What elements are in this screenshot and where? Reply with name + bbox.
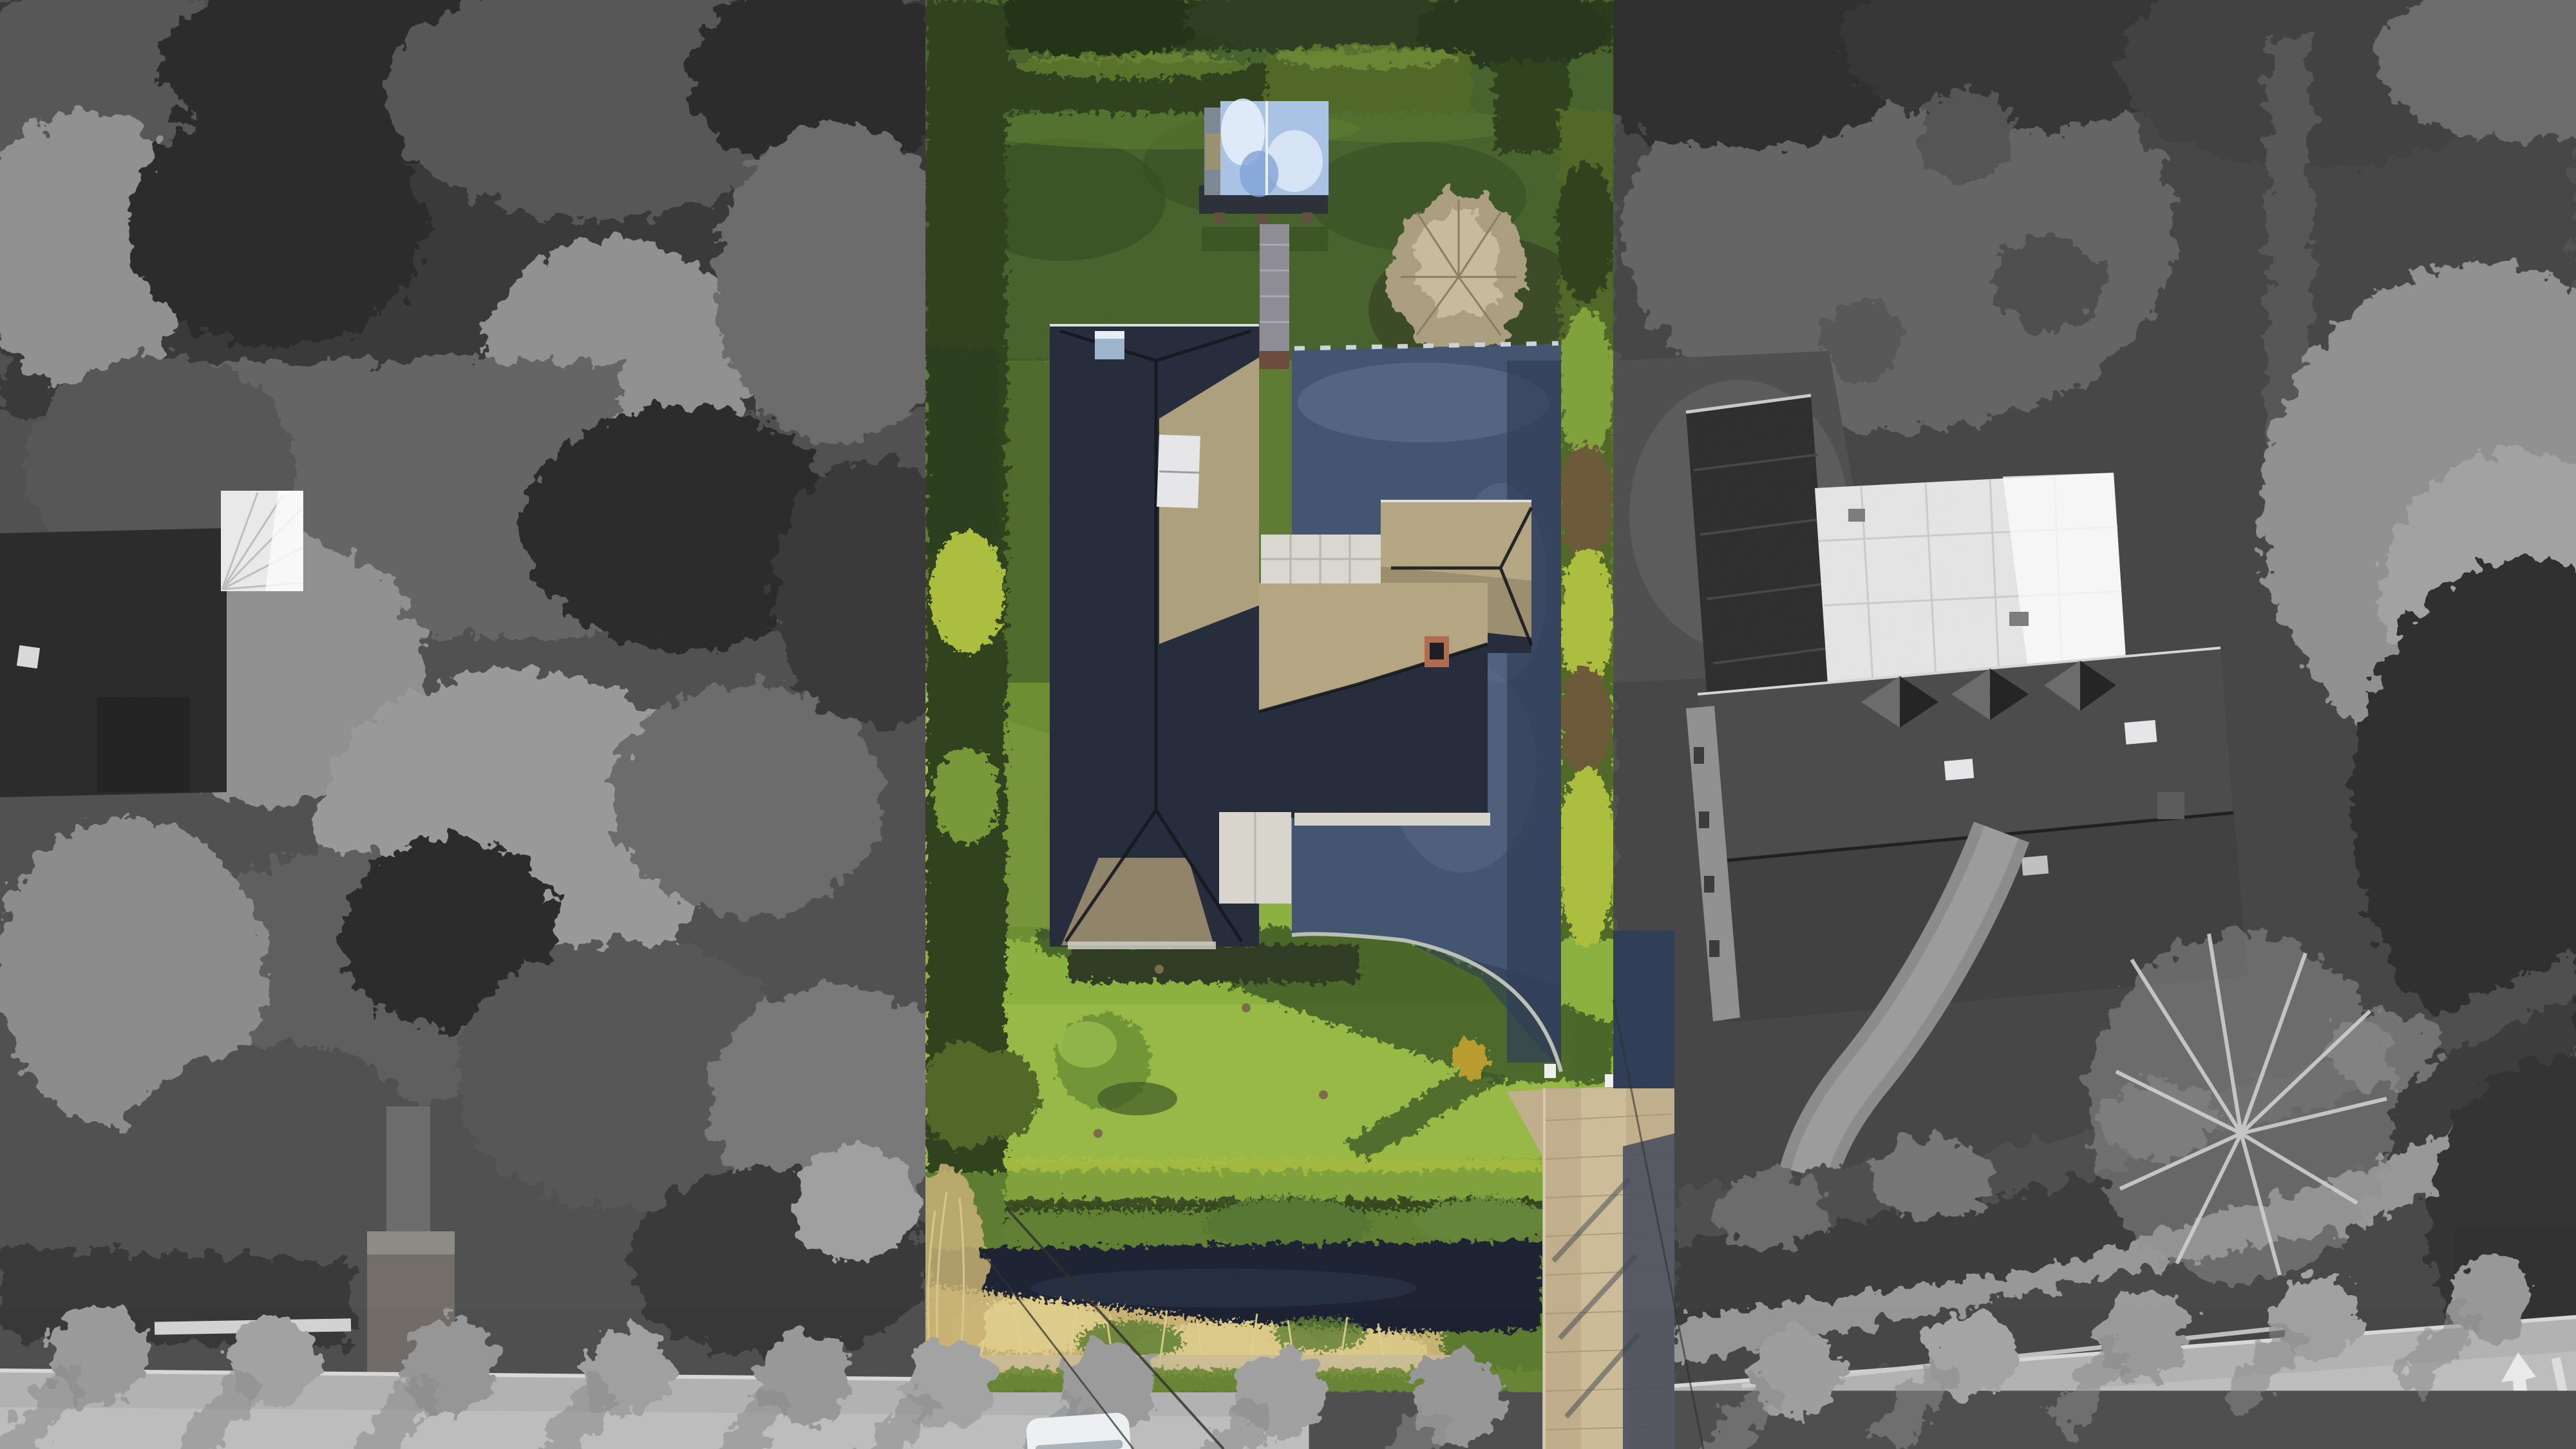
aerial-photo-stage xyxy=(0,0,2576,1449)
aerial-photo xyxy=(0,0,2576,1449)
film-grain xyxy=(0,0,2576,1449)
